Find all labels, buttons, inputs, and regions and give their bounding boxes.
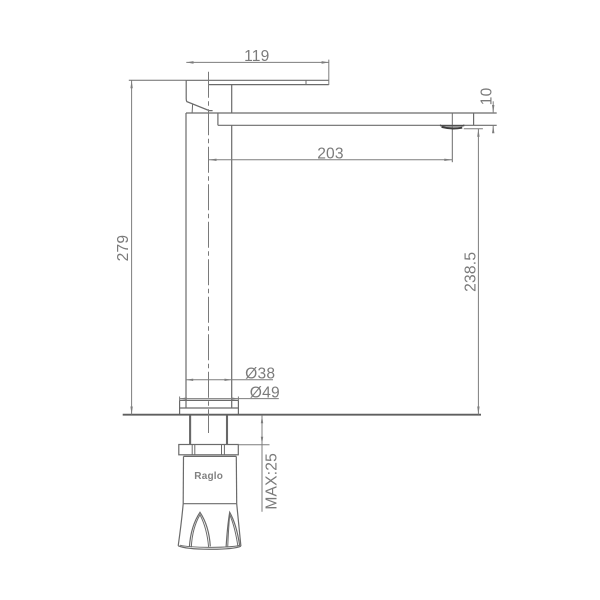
svg-text:119: 119 (244, 48, 269, 65)
svg-text:Ø38: Ø38 (245, 366, 275, 383)
svg-text:203: 203 (317, 146, 344, 163)
svg-text:279: 279 (115, 235, 132, 262)
svg-text:Raglo: Raglo (194, 471, 223, 482)
svg-text:238.5: 238.5 (463, 252, 480, 292)
svg-text:MAX:25: MAX:25 (264, 453, 281, 510)
svg-text:10: 10 (479, 87, 496, 105)
svg-text:Ø49: Ø49 (250, 385, 280, 402)
